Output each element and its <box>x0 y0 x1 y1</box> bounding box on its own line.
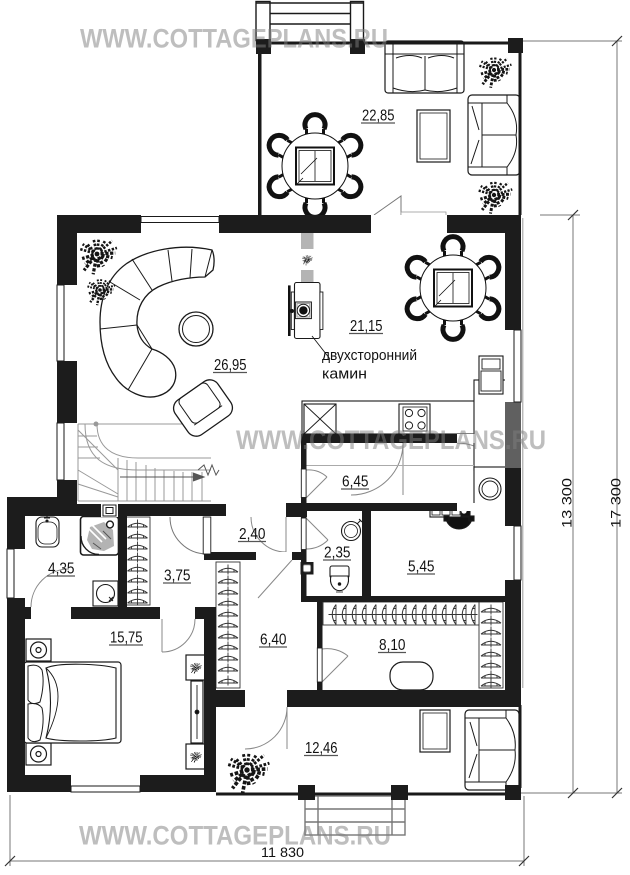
svg-text:21,15: 21,15 <box>350 318 383 335</box>
svg-text:15,75: 15,75 <box>110 630 143 647</box>
svg-text:12,46: 12,46 <box>305 740 338 757</box>
svg-text:WWW.COTTAGEPLANS.RU: WWW.COTTAGEPLANS.RU <box>80 24 388 54</box>
svg-text:камин: камин <box>322 366 367 383</box>
svg-text:2,35: 2,35 <box>324 545 351 562</box>
svg-text:2,40: 2,40 <box>239 526 266 543</box>
svg-text:WWW.COTTAGEPLANS.RU: WWW.COTTAGEPLANS.RU <box>236 425 546 455</box>
svg-text:3,75: 3,75 <box>164 568 191 585</box>
svg-text:26,95: 26,95 <box>214 357 247 374</box>
svg-text:6,40: 6,40 <box>260 632 287 649</box>
svg-text:WWW.COTTAGEPLANS.RU: WWW.COTTAGEPLANS.RU <box>79 821 391 851</box>
svg-text:5,45: 5,45 <box>408 559 435 576</box>
svg-text:17 300: 17 300 <box>608 478 624 528</box>
svg-text:8,10: 8,10 <box>379 637 406 654</box>
svg-text:22,85: 22,85 <box>362 108 395 125</box>
svg-text:4,35: 4,35 <box>48 561 75 578</box>
svg-text:двухсторонний: двухсторонний <box>322 347 417 364</box>
svg-text:13 300: 13 300 <box>559 478 575 528</box>
svg-text:6,45: 6,45 <box>342 474 369 491</box>
